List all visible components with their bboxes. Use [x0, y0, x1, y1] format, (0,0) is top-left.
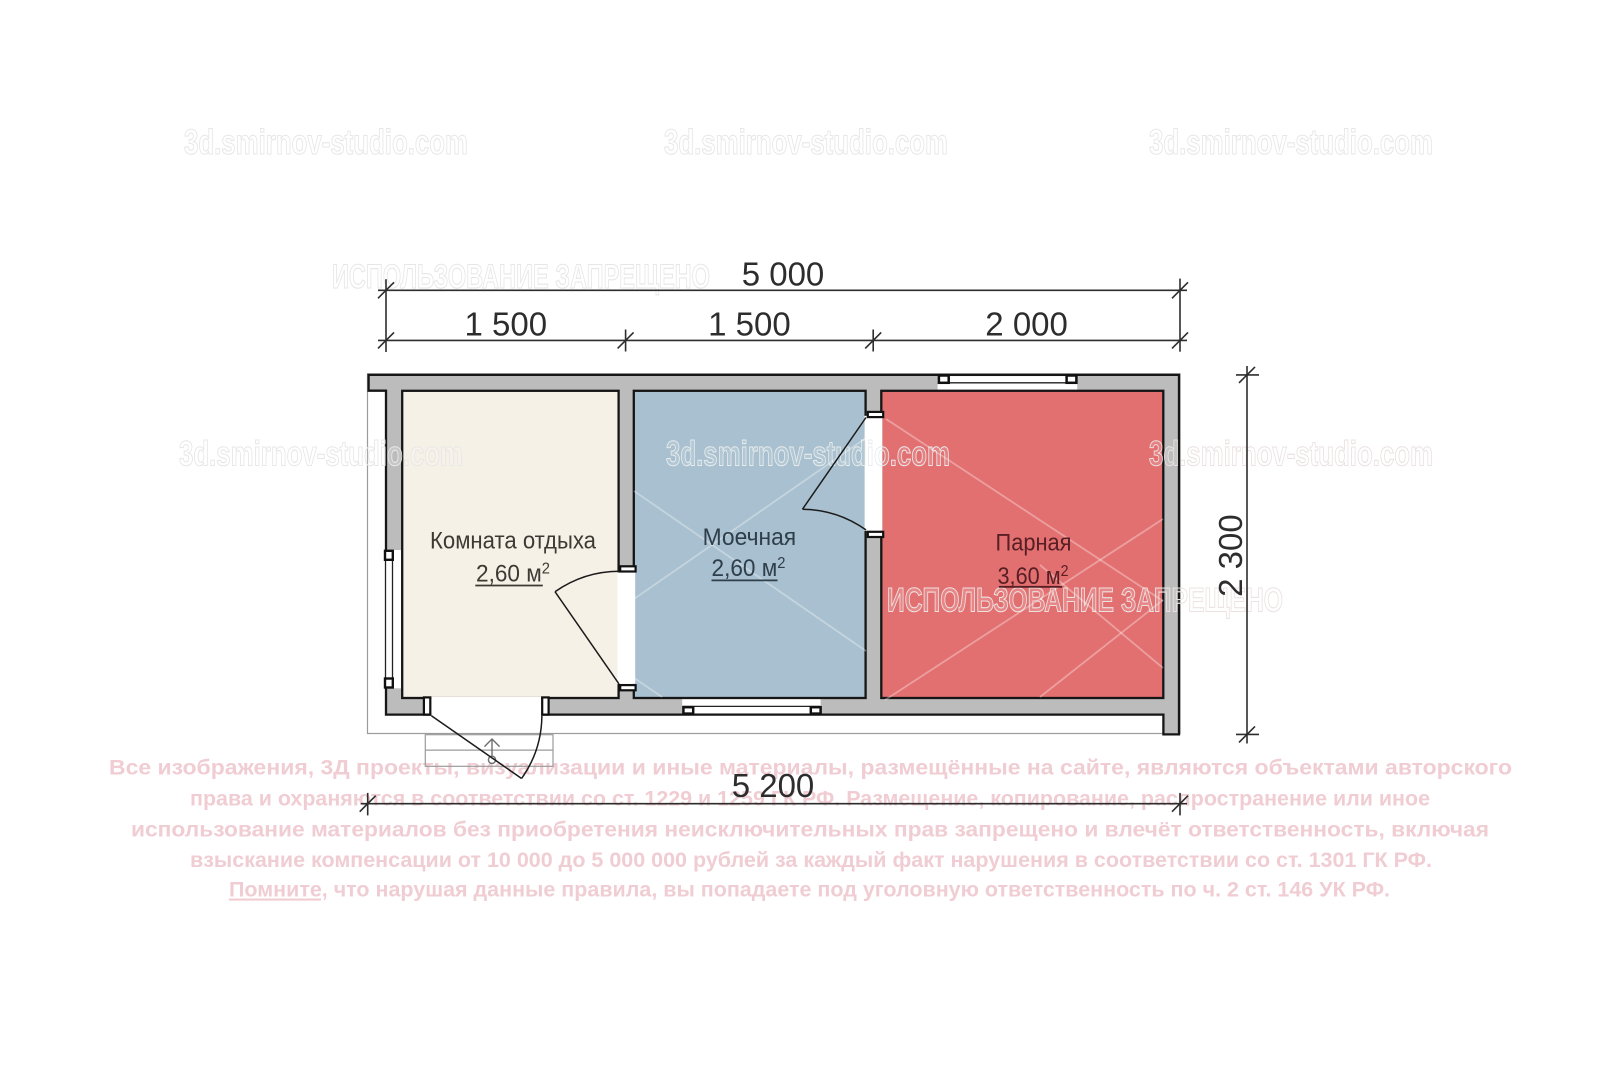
svg-text:Моечная: Моечная	[703, 524, 797, 551]
svg-text:1 500: 1 500	[708, 306, 791, 343]
svg-text:Помните, что нарушая данные пр: Помните, что нарушая данные правила, вы …	[229, 878, 1390, 902]
svg-text:взыскание компенсации от 10 00: взыскание компенсации от 10 000 до 5 000…	[190, 848, 1432, 872]
svg-text:2,60 м2: 2,60 м2	[712, 555, 786, 582]
svg-text:Парная: Парная	[996, 530, 1072, 557]
svg-text:3d.smirnov-studio.com: 3d.smirnov-studio.com	[666, 435, 950, 474]
svg-text:2 000: 2 000	[985, 306, 1068, 343]
svg-text:Комната отдыха: Комната отдыха	[430, 527, 596, 554]
svg-text:3d.smirnov-studio.com: 3d.smirnov-studio.com	[664, 123, 948, 162]
svg-text:5 200: 5 200	[732, 767, 815, 804]
svg-text:1 500: 1 500	[465, 306, 548, 343]
svg-text:2,60 м2: 2,60 м2	[476, 560, 550, 587]
svg-text:3d.smirnov-studio.com: 3d.smirnov-studio.com	[179, 435, 463, 474]
svg-text:5 000: 5 000	[742, 256, 825, 293]
svg-text:3d.smirnov-studio.com: 3d.smirnov-studio.com	[1149, 435, 1433, 474]
svg-text:использование материалов без п: использование материалов без приобретени…	[131, 818, 1489, 842]
svg-text:3d.smirnov-studio.com: 3d.smirnov-studio.com	[184, 123, 468, 162]
svg-text:2 300: 2 300	[1212, 514, 1249, 597]
svg-text:3d.smirnov-studio.com: 3d.smirnov-studio.com	[1149, 123, 1433, 162]
